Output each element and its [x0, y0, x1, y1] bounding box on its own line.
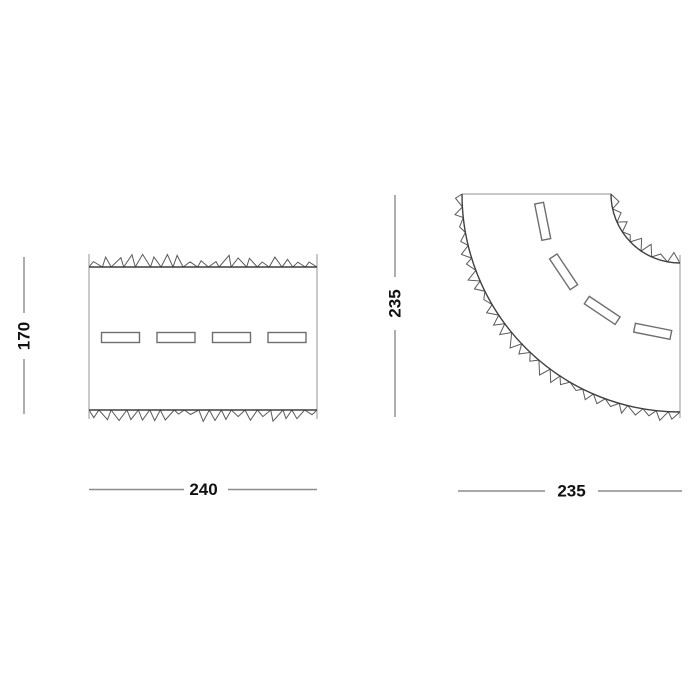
- lane-marking: [584, 296, 620, 324]
- curve-outer-road-arc: [462, 194, 680, 412]
- lane-marking: [213, 333, 251, 343]
- straight-road-piece: [89, 254, 317, 421]
- dimension-label-235-vertical: 235: [386, 289, 405, 317]
- lane-marking: [634, 323, 672, 339]
- dimension-straight-height: 170: [15, 257, 34, 414]
- curved-road-piece: [455, 194, 680, 420]
- straight-lane-markings: [102, 333, 307, 343]
- dimension-curve-height: 235: [386, 195, 405, 417]
- road-pieces-dimension-drawing: 170 240 235 235: [0, 0, 700, 700]
- lane-marking: [535, 202, 551, 240]
- curve-inner-road-arc: [611, 194, 680, 263]
- dimension-label-235-horizontal: 235: [557, 482, 585, 501]
- dimension-label-170: 170: [15, 322, 34, 350]
- lane-marking: [157, 333, 195, 343]
- straight-top-jagged-edge: [89, 254, 317, 267]
- dimension-straight-width: 240: [89, 480, 317, 499]
- dimension-curve-width: 235: [458, 482, 682, 501]
- lane-marking: [268, 333, 306, 343]
- curve-outer-jagged-edge: [455, 194, 680, 420]
- curve-lane-markings: [535, 202, 672, 339]
- dimension-label-240: 240: [189, 480, 217, 499]
- lane-marking: [102, 333, 140, 343]
- straight-bottom-jagged-edge: [89, 410, 317, 421]
- lane-marking: [550, 254, 578, 290]
- curve-inner-jagged-edge: [611, 194, 680, 263]
